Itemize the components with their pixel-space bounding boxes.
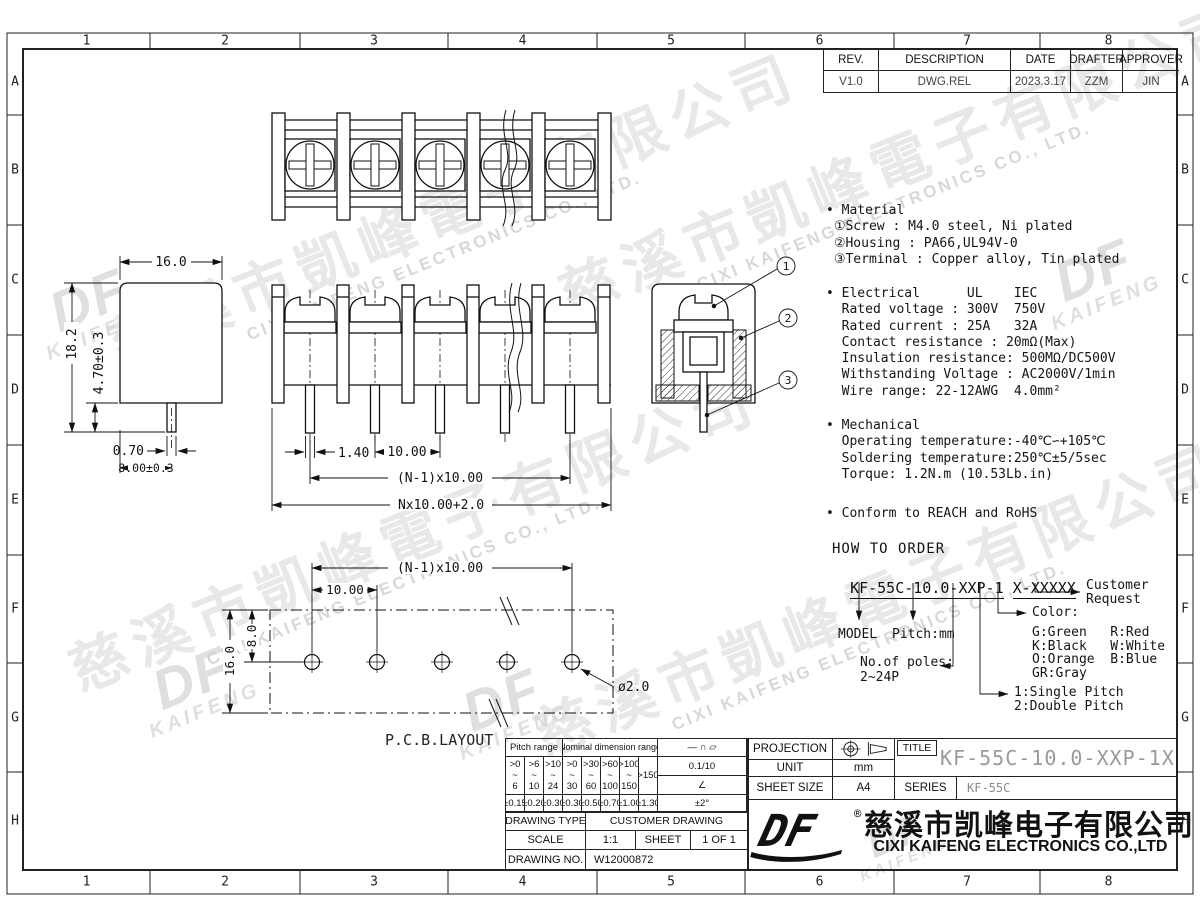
dim-pcb-span: (N-1)x10.00 xyxy=(397,561,483,576)
grid-row-label: A xyxy=(1181,75,1189,90)
grid-col-label: 3 xyxy=(370,34,378,49)
order-double-pitch: 2:Double Pitch xyxy=(1014,700,1124,714)
grid-row-label: B xyxy=(1181,163,1189,178)
grid-col-label: 7 xyxy=(963,34,971,49)
company-logo: DF ® xyxy=(750,802,868,868)
tol-flatness: 0.1/10 xyxy=(658,757,747,776)
grid-col-label: 2 xyxy=(221,34,229,49)
order-color-label: Color: xyxy=(1032,606,1079,620)
order-part-number: KF-55C-10.0-XXP-1 X-XXXXX xyxy=(832,561,1076,599)
tol-value: ±1.00 xyxy=(620,795,639,813)
tol-range-last: >150 xyxy=(639,757,658,795)
sheet-label: SHEET xyxy=(636,831,691,850)
tol-nominal-header: Nominal dimension range xyxy=(563,739,658,757)
drawing-no-value: W12000872 xyxy=(586,850,748,870)
dim-side-width: 16.0 xyxy=(155,255,186,270)
part-pitch: 10.0 xyxy=(913,579,949,599)
grid-row-label: D xyxy=(11,383,19,398)
grid-row-label: H xyxy=(1181,814,1189,829)
part-poles: XXP xyxy=(958,579,985,599)
part-custom: XXXXX xyxy=(1031,579,1076,599)
dim-pcb-pitch: 10.00 xyxy=(326,582,364,597)
part-sep: - xyxy=(904,579,913,599)
rev-header: DESCRIPTION xyxy=(879,49,1011,71)
order-poles-label: No.of poles: xyxy=(860,656,954,670)
unit-value: mm xyxy=(833,760,895,777)
order-color-list: G:Green R:Red K:Black W:White O:Orange B… xyxy=(1032,626,1165,680)
rev-header: APPROVER xyxy=(1123,49,1179,71)
part-space xyxy=(1004,579,1013,597)
dim-side-height: 18.2 xyxy=(65,328,80,359)
order-pitch-label: Pitch:mm xyxy=(892,628,955,642)
projection-label: PROJECTION xyxy=(748,738,833,760)
pcb-holes xyxy=(301,651,583,673)
balloon-2: 2 xyxy=(785,312,792,325)
rev-header: DATE xyxy=(1011,49,1071,71)
part-model: KF-55C xyxy=(850,579,904,599)
dim-side-pin: 4.70±0.3 xyxy=(92,332,107,395)
grid-col-label: 5 xyxy=(667,34,675,49)
part-color: X xyxy=(1013,579,1022,599)
grid-col-label: 6 xyxy=(816,875,824,890)
grid-row-label: E xyxy=(1181,493,1189,508)
grid-row-label: F xyxy=(1181,602,1189,617)
tol-value: ±0.30 xyxy=(563,795,582,813)
dim-side-pin-width: 0.70 xyxy=(113,444,144,459)
top-view xyxy=(272,110,611,226)
tol-symbols-header: — ∩ ▱ xyxy=(658,739,747,757)
tol-range: >100 ~ 150 xyxy=(620,757,639,795)
tol-value: ±0.50 xyxy=(582,795,601,813)
grid-row-label: D xyxy=(1181,383,1189,398)
unit-label: UNIT xyxy=(748,760,833,777)
tol-value: ±1.30 xyxy=(639,795,658,813)
dim-span: (N-1)x10.00 xyxy=(397,471,483,486)
tol-range: >6 ~ 10 xyxy=(525,757,544,795)
sheet-size-value: A4 xyxy=(833,777,895,800)
part-pitchtype: 1 xyxy=(995,579,1004,599)
order-single-pitch: 1:Single Pitch xyxy=(1014,686,1124,700)
rev-header: REV. xyxy=(824,49,879,71)
conform-spec: • Conform to REACH and RoHS xyxy=(826,506,1037,522)
grid-col-label: 6 xyxy=(816,34,824,49)
revision-table: REV. DESCRIPTION DATE DRAFTER APPROVER V… xyxy=(823,48,1178,93)
order-model-label: MODEL xyxy=(838,628,877,642)
part-sep: - xyxy=(1022,579,1031,599)
drawing-type-value: CUSTOMER DRAWING xyxy=(586,812,748,831)
sheet-value: 1 OF 1 xyxy=(691,831,748,850)
rev-cell: DWG.REL xyxy=(879,71,1011,93)
grid-col-label: 3 xyxy=(370,875,378,890)
grid-col-label: 8 xyxy=(1105,875,1113,890)
balloon-1: 1 xyxy=(783,260,790,273)
series-label: SERIES xyxy=(895,777,957,800)
title-label: TITLE xyxy=(897,740,937,756)
company-logo-text: DF xyxy=(753,806,821,857)
grid-col-label: 7 xyxy=(963,875,971,890)
grid-row-label: H xyxy=(11,814,19,829)
pcb-layout-label: P.C.B.LAYOUT xyxy=(385,731,493,749)
rev-cell: ZZM xyxy=(1071,71,1123,93)
pcb-dims xyxy=(222,561,614,713)
part-sep: - xyxy=(986,579,995,599)
front-view: 1.40 10.00 (N-1)x10.00 Nx10.00+2.0 xyxy=(272,283,611,513)
tol-pitch-header: Pitch range xyxy=(506,739,563,757)
tol-value: ±0.15 xyxy=(506,795,525,813)
drawing-no-label: DRAWING NO. xyxy=(506,850,586,870)
grid-row-label: B xyxy=(11,163,19,178)
side-view: 16.0 18.2 4.70±0.3 0.70 8.00±0.3 xyxy=(64,255,222,475)
dim-pcb-hole: ø2.0 xyxy=(618,680,649,695)
pcb-layout: (N-1)x10.00 10.00 8.0 16.0 ø2.0 xyxy=(222,561,649,727)
grid-col-label: 2 xyxy=(221,875,229,890)
tol-range: >30 ~ 60 xyxy=(582,757,601,795)
grid-row-label: G xyxy=(11,710,19,725)
tol-range: >0 ~ 6 xyxy=(506,757,525,795)
mechanical-spec: • Mechanical Operating temperature:-40℃∽… xyxy=(826,418,1107,483)
grid-row-label: A xyxy=(11,75,19,90)
grid-col-label: 5 xyxy=(667,875,675,890)
material-spec: • Material ①Screw : M4.0 steel, Ni plate… xyxy=(826,203,1119,268)
scale-value: 1:1 xyxy=(586,831,636,850)
scale-label: SCALE xyxy=(506,831,586,850)
electrical-spec: • Electrical UL IEC Rated voltage : 300V… xyxy=(826,286,1116,400)
projection-symbol-cell xyxy=(833,738,895,760)
section-view: 1 2 3 xyxy=(652,257,797,432)
tol-value: ±0.30 xyxy=(544,795,563,813)
tolerance-table: Pitch range Nominal dimension range — ∩ … xyxy=(505,738,748,812)
dim-pitch: 10.00 xyxy=(387,445,426,460)
grid-col-label: 8 xyxy=(1105,34,1113,49)
projection-symbol xyxy=(833,738,894,760)
grid-col-label: 4 xyxy=(519,34,527,49)
grid-row-label: C xyxy=(11,273,19,288)
dim-total: Nx10.00+2.0 xyxy=(398,498,484,513)
title-value: KF-55C-10.0-XXP-1X xyxy=(940,740,1176,776)
drawing-type-label: DRAWING TYPE xyxy=(506,812,586,831)
drawing-info-table: DRAWING TYPE CUSTOMER DRAWING SCALE 1:1 … xyxy=(505,812,748,870)
grid-col-label: 1 xyxy=(83,875,91,890)
grid-row-label: E xyxy=(11,493,19,508)
balloon-3: 3 xyxy=(785,374,792,387)
grid-row-label: F xyxy=(11,602,19,617)
company-name-en: CIXI KAIFENG ELECTRONICS CO.,LTD xyxy=(864,838,1177,856)
tol-angle-value: ±2° xyxy=(658,795,747,813)
series-value: KF-55C xyxy=(957,777,1177,800)
order-customer-request: Customer Request xyxy=(1086,579,1149,606)
dim-side-depth: 8.00±0.3 xyxy=(118,461,173,475)
grid-row-label: G xyxy=(1181,710,1189,725)
grid-col-label: 1 xyxy=(83,34,91,49)
tol-range: >0 ~ 30 xyxy=(563,757,582,795)
grid-row-label: C xyxy=(1181,273,1189,288)
grid-col-label: 4 xyxy=(519,875,527,890)
rev-cell: V1.0 xyxy=(824,71,879,93)
dim-pcb-row: 8.0 xyxy=(244,625,259,648)
tol-range: >10 ~ 24 xyxy=(544,757,563,795)
dim-pin-width: 1.40 xyxy=(338,446,369,461)
dim-pcb-height: 16.0 xyxy=(222,646,237,676)
rev-header: DRAFTER xyxy=(1071,49,1123,71)
sheet-size-label: SHEET SIZE xyxy=(748,777,833,800)
rev-cell: 2023.3.17 xyxy=(1011,71,1071,93)
order-poles-range: 2~24P xyxy=(860,671,899,685)
registered-mark: ® xyxy=(854,807,862,821)
tol-value: ±0.20 xyxy=(525,795,544,813)
drawing-sheet: { "sheet": { "grid_cols": ["1","2","3","… xyxy=(0,0,1200,910)
tol-value: ±0.70 xyxy=(601,795,620,813)
tol-range: >60 ~ 100 xyxy=(601,757,620,795)
tol-angle-symbol: ∠ xyxy=(658,776,747,795)
order-heading: HOW TO ORDER xyxy=(832,541,945,557)
company-block: DF ® 慈溪市凯峰电子有限公司 CIXI KAIFENG ELECTRONIC… xyxy=(748,800,1177,870)
part-sep: - xyxy=(949,579,958,599)
rev-cell: JIN xyxy=(1123,71,1179,93)
